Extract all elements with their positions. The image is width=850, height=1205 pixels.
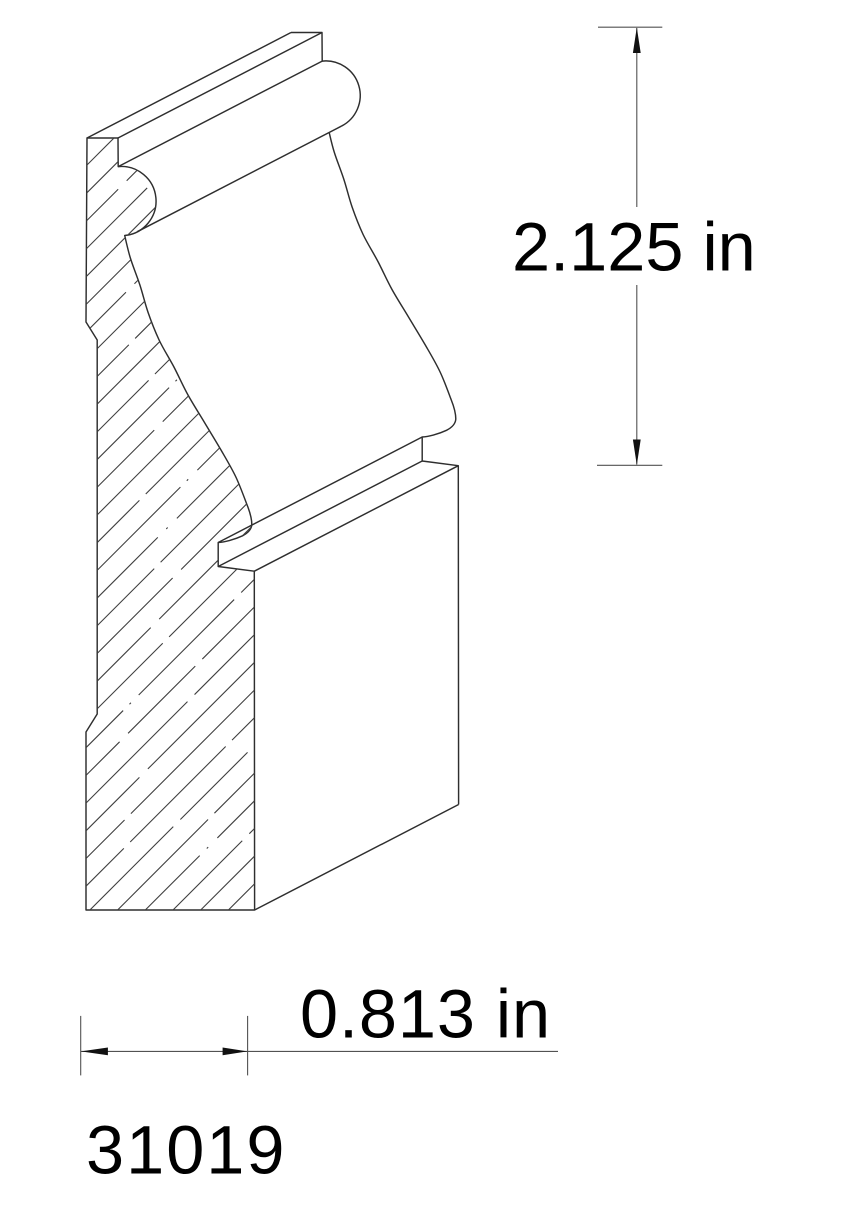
svg-text:2.125 in: 2.125 in xyxy=(512,209,756,286)
svg-text:31019: 31019 xyxy=(86,1112,286,1189)
svg-text:0.813 in: 0.813 in xyxy=(300,976,551,1053)
